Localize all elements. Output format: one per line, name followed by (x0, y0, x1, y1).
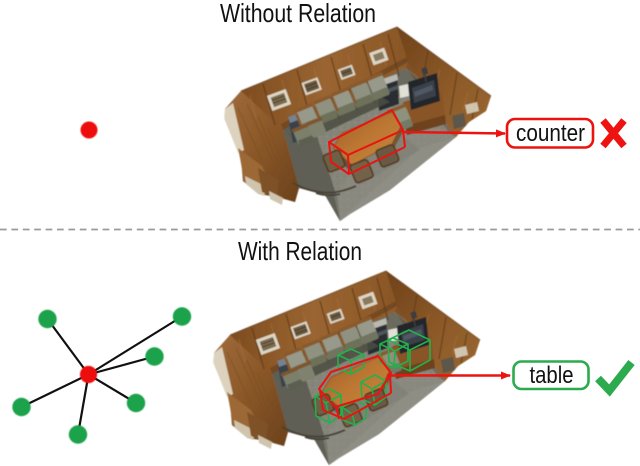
svg-text:Without Relation: Without Relation (220, 0, 376, 28)
svg-text:counter: counter (516, 120, 585, 147)
svg-text:With Relation: With Relation (238, 236, 362, 266)
svg-text:table: table (530, 362, 574, 389)
